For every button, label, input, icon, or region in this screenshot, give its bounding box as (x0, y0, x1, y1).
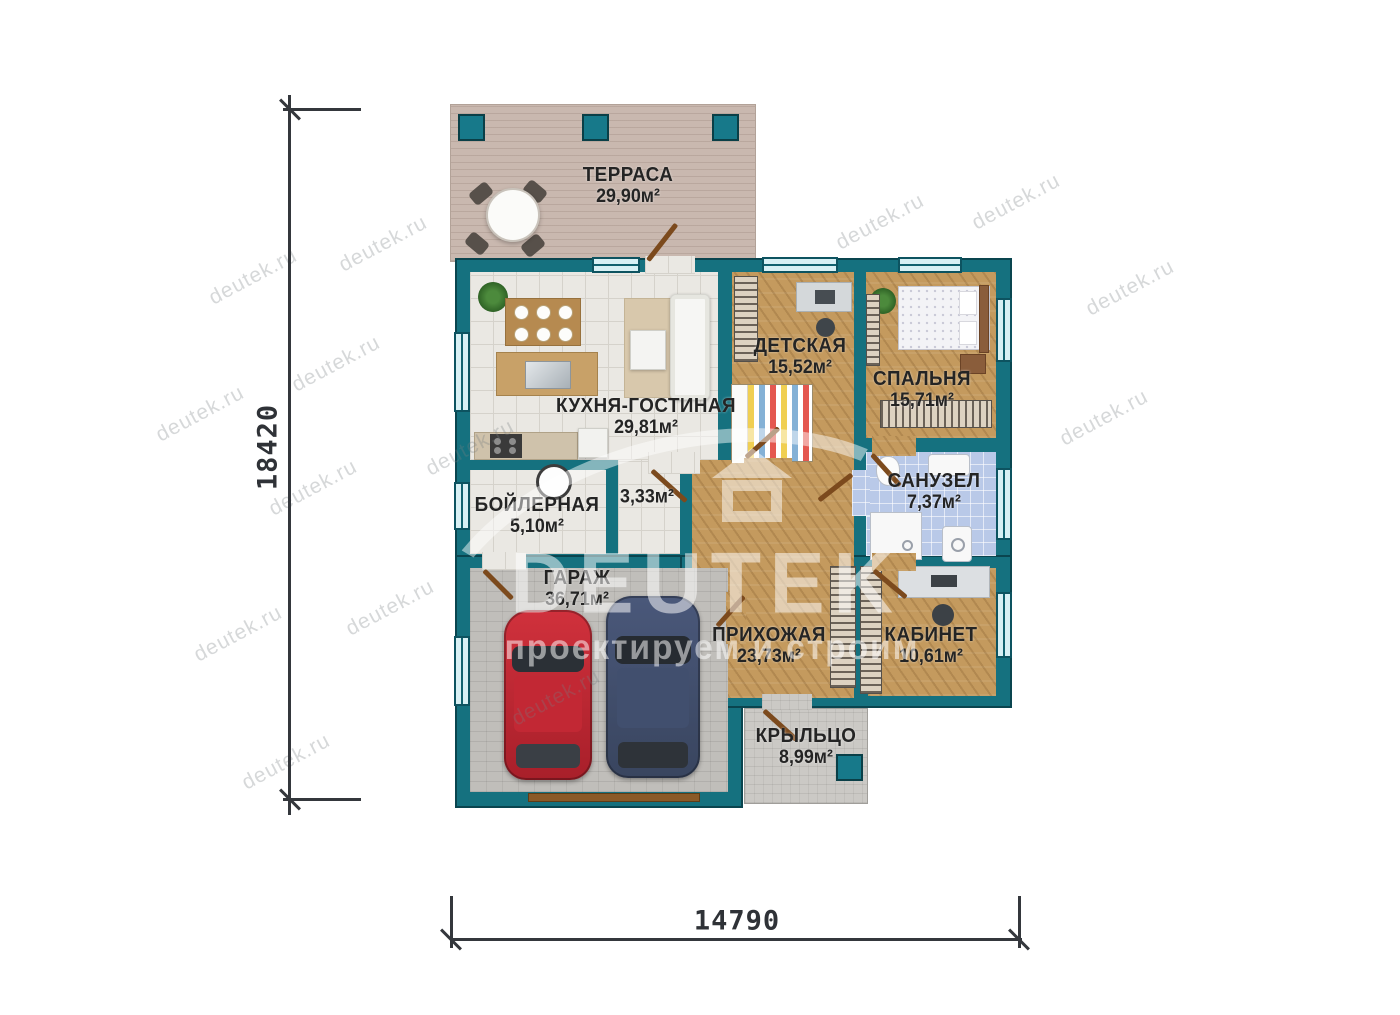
kids-laptop (815, 290, 835, 304)
dimension-tick (283, 798, 361, 801)
watermark-text: deutek.ru (1056, 385, 1153, 452)
room-name: КУХНЯ-ГОСТИНАЯ (556, 396, 736, 418)
dimension-value-horizontal: 14790 (694, 906, 780, 937)
room-area: 29,90м² (583, 187, 674, 208)
room-name: ДЕТСКАЯ (754, 336, 847, 358)
dimension-tick (283, 108, 361, 111)
kids-desk (796, 282, 852, 312)
terrace-table (486, 188, 540, 242)
label-kids: ДЕТСКАЯ 15,52м² (754, 336, 847, 378)
logo-slogan-text: проектируем и строим (505, 628, 920, 668)
watermark-text: deutek.ru (342, 575, 439, 642)
watermark-text: deutek.ru (190, 601, 287, 668)
room-area: 15,52м² (754, 358, 847, 379)
terrace-post (712, 114, 739, 141)
kitchen-sink (525, 361, 571, 389)
dimension-line-vertical (288, 95, 291, 815)
logo-house-icon (722, 480, 782, 522)
window-kitchen-left (454, 332, 470, 412)
window-office-right (996, 592, 1012, 658)
room-area: 8,99м² (756, 748, 857, 769)
bedroom-shelf (866, 294, 880, 366)
window-bathroom-right (996, 468, 1012, 540)
dining-table (505, 298, 581, 346)
window-bedroom-top (898, 257, 962, 273)
bed-pillow (959, 321, 977, 345)
room-name: ТЕРРАСА (583, 165, 674, 187)
terrace-post (458, 114, 485, 141)
window-kitchen-top (592, 257, 640, 273)
terrace-post (582, 114, 609, 141)
floor-plan-canvas: ТЕРРАСА 29,90м² КУХНЯ-ГОСТИНАЯ 29,81м² Д… (0, 0, 1400, 1015)
watermark-text: deutek.ru (1082, 255, 1179, 322)
watermark-text: deutek.ru (152, 381, 249, 448)
watermark-text: deutek.ru (288, 331, 385, 398)
plant (478, 282, 508, 312)
watermark-text: deutek.ru (335, 211, 432, 278)
bed-headboard (979, 285, 989, 353)
label-bedroom: СПАЛЬНЯ 15,71м² (873, 369, 971, 411)
watermark-text: deutek.ru (832, 189, 929, 256)
logo-brand-text: DEUTEK (510, 535, 901, 634)
kitchen-island (496, 352, 598, 396)
room-name: СПАЛЬНЯ (873, 369, 971, 391)
dimension-value-vertical: 18420 (253, 404, 284, 490)
coffee-table (630, 330, 666, 370)
sofa (670, 294, 710, 400)
room-area: 15,71м² (873, 391, 971, 412)
window-bedroom-right (996, 298, 1012, 362)
bed-pillow (959, 291, 977, 315)
window-boiler-left (454, 482, 470, 530)
watermark-text: deutek.ru (968, 169, 1065, 236)
watermark-text: deutek.ru (238, 729, 335, 796)
window-kids-top (762, 257, 838, 273)
bedroom-bed (898, 286, 990, 350)
label-terrace: ТЕРРАСА 29,90м² (583, 165, 674, 207)
garage-gate (528, 793, 700, 802)
logo-house-roof-icon (712, 448, 792, 478)
dimension-line-horizontal (450, 938, 1022, 941)
